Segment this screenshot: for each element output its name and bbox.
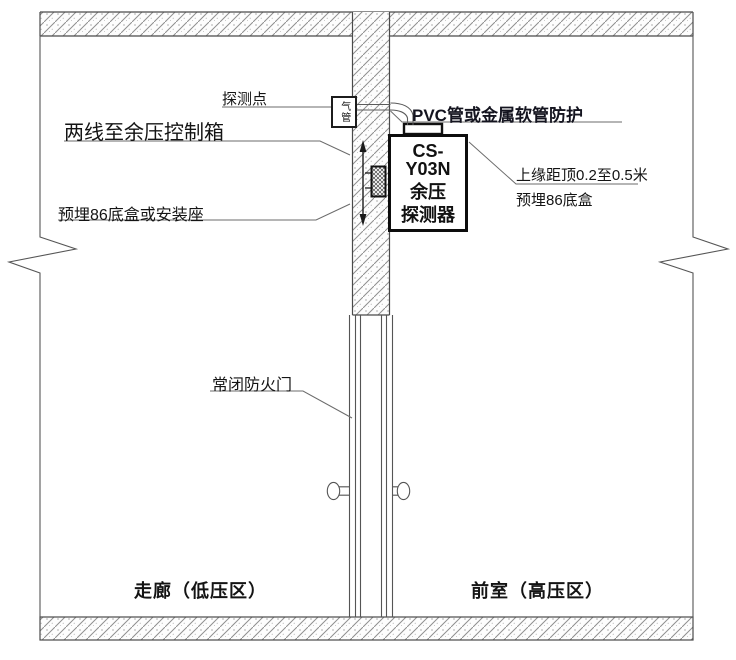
label-anteroom-high-pressure: 前室（高压区） [471,577,604,603]
detector-model: CS-Y03N [391,142,465,178]
label-detection-point: 探测点 [222,88,267,109]
label-embedded-box-or-mount: 预埋86底盒或安装座 [58,201,204,225]
leader-fire-door [210,391,352,418]
label-pvc-protection: PVC管或金属软管防护 [412,101,583,126]
label-top-edge-distance: 上缘距顶0.2至0.5米 [516,164,648,185]
label-embedded-86-box: 预埋86底盒 [516,189,593,210]
label-fire-door: 常闭防火门 [212,371,292,395]
pressure-detector-box: CS-Y03N 余压 探测器 [388,134,468,232]
pressure-detector-installation-diagram: 探测点 两线至余压控制箱 预埋86底盒或安装座 PVC管或金属软管防护 上缘距顶… [0,0,736,660]
door-handle-left [327,482,349,499]
air-tube-box: 气管 [331,96,357,128]
partition-wall [353,12,390,315]
label-corridor-low-pressure: 走廊（低压区） [134,577,267,603]
detector-name-line2: 探测器 [401,206,455,224]
detector-name-line1: 余压 [410,183,446,201]
diagram-linework [0,0,736,660]
right-wall-break-line [660,36,728,617]
fire-door [350,315,393,617]
leader-lines [58,107,638,418]
floor-slab [40,617,693,640]
door-handle-right [393,482,410,499]
label-wires-to-control-box: 两线至余压控制箱 [64,116,224,145]
